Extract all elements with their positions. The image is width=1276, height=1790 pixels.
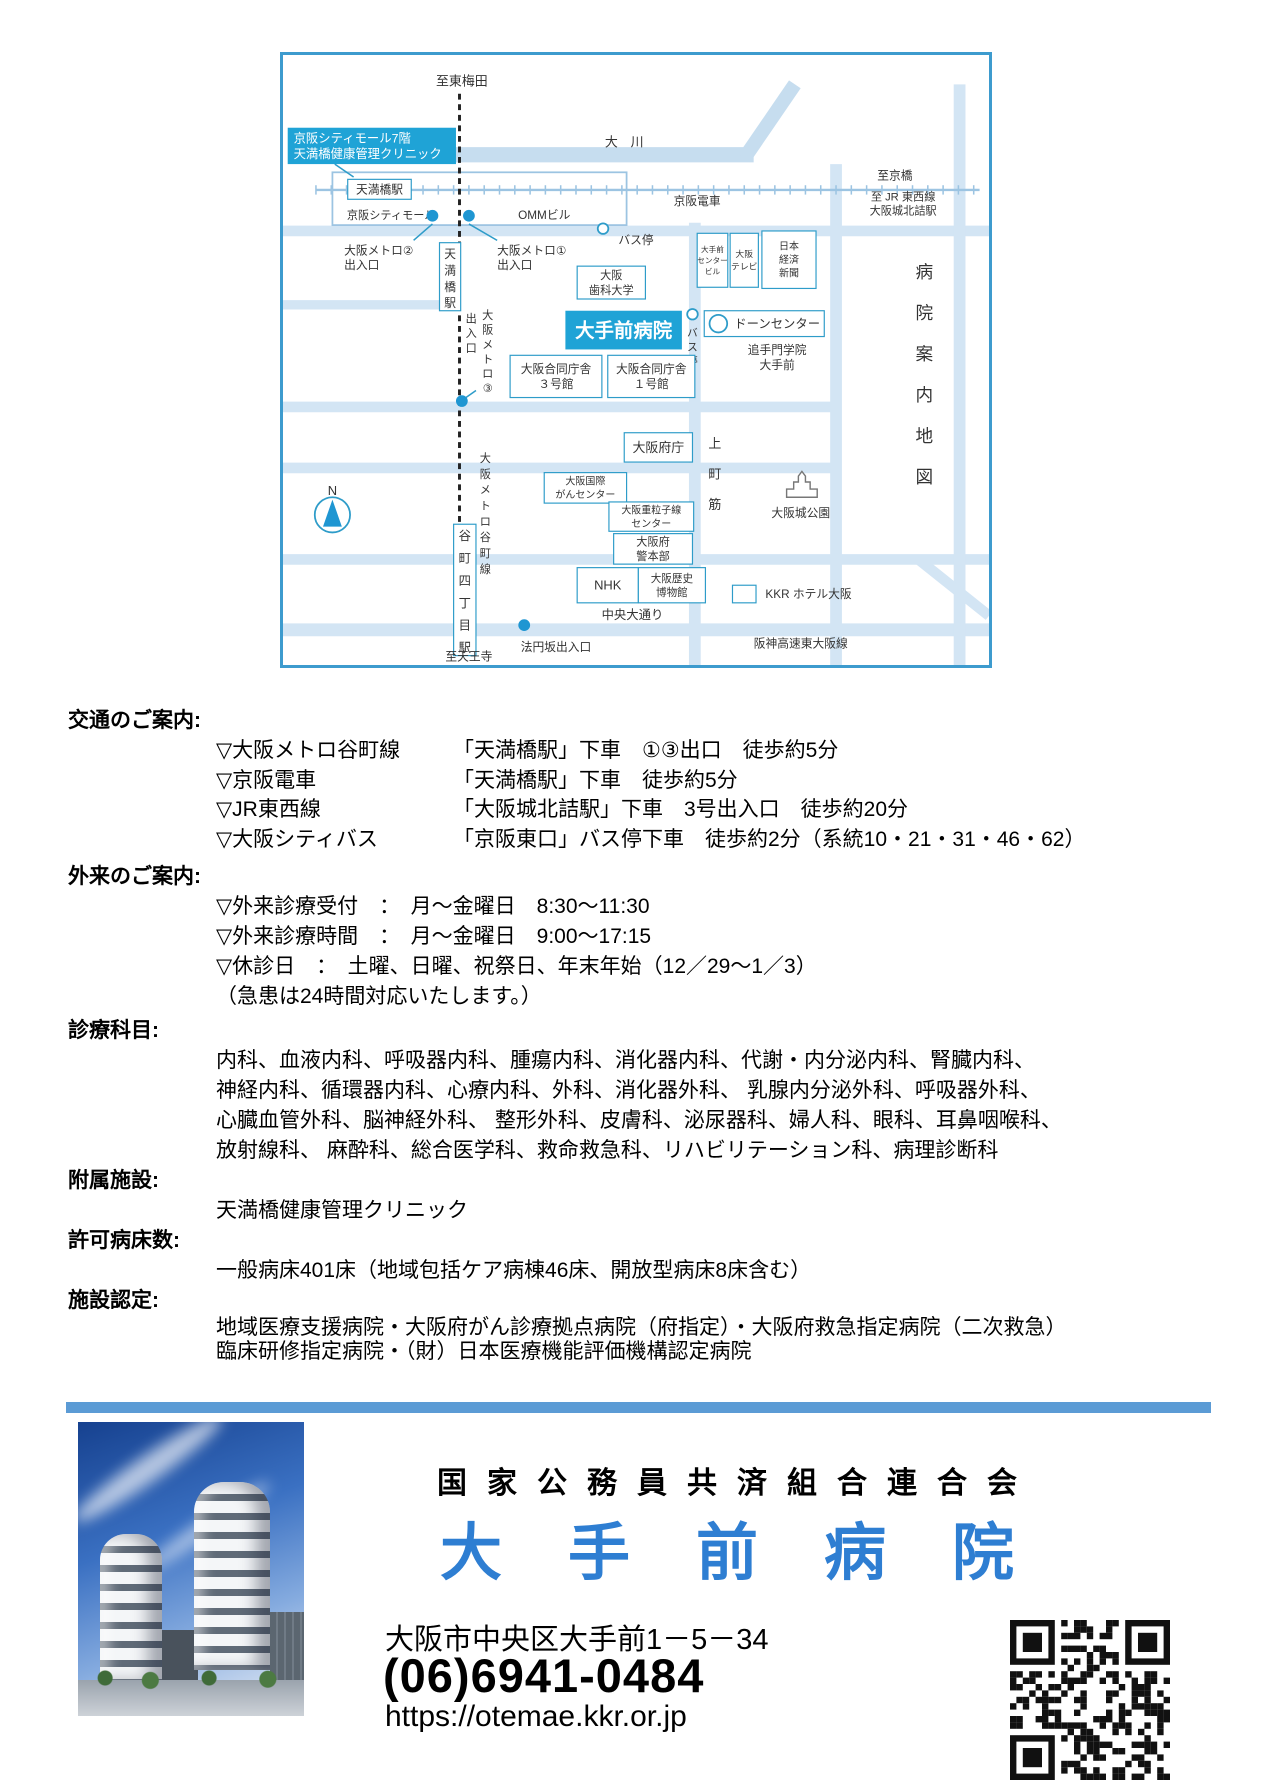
svg-text:出入口: 出入口 bbox=[344, 258, 379, 272]
svg-text:天満橋駅: 天満橋駅 bbox=[356, 182, 403, 196]
svg-text:上: 上 bbox=[708, 436, 721, 451]
svg-text:谷: 谷 bbox=[459, 529, 471, 543]
hospital-phone: (06)6941-0484 bbox=[383, 1648, 704, 1703]
svg-text:博物館: 博物館 bbox=[656, 586, 688, 599]
svg-text:出入口: 出入口 bbox=[497, 258, 532, 272]
beds-value: 一般病床401床（地域包括ケア病棟46床、開放型病床8床含む） bbox=[216, 1256, 1228, 1286]
svg-text:内: 内 bbox=[915, 385, 933, 405]
svg-text:大阪メトロ②: 大阪メトロ② bbox=[344, 243, 413, 257]
access-mode: ▽京阪電車 bbox=[216, 766, 453, 796]
certification-line: 臨床研修指定病院・（財）日本医療機能評価機構認定病院 bbox=[216, 1340, 1228, 1364]
svg-text:筋: 筋 bbox=[708, 497, 721, 512]
svg-text:線: 線 bbox=[480, 562, 491, 576]
access-heading: 交通のご案内: bbox=[68, 706, 1228, 736]
svg-text:メ: メ bbox=[482, 339, 493, 351]
svg-text:大阪合同庁舎: 大阪合同庁舎 bbox=[616, 362, 687, 376]
svg-text:口: 口 bbox=[466, 343, 477, 355]
facility-value: 天満橋健康管理クリニック bbox=[216, 1196, 1228, 1226]
info-sections: 交通のご案内: ▽大阪メトロ谷町線 「天満橋駅」下車 ①③出口 徒歩約5分 ▽京… bbox=[68, 706, 1228, 1364]
svg-text:阪: 阪 bbox=[482, 323, 493, 337]
svg-text:歯科大学: 歯科大学 bbox=[589, 283, 634, 297]
access-item: ▽JR東西線 「大阪城北詰駅」下車 3号出入口 徒歩約20分 bbox=[216, 795, 1228, 825]
svg-text:追手門学院: 追手門学院 bbox=[748, 343, 807, 357]
svg-text:地: 地 bbox=[915, 426, 933, 446]
svg-text:バ: バ bbox=[687, 328, 698, 340]
access-detail: 「大阪城北詰駅」下車 3号出入口 徒歩約20分 bbox=[453, 795, 908, 825]
svg-text:満: 満 bbox=[444, 264, 456, 277]
svg-text:出: 出 bbox=[466, 311, 477, 325]
svg-text:３号館: ３号館 bbox=[538, 377, 573, 391]
svg-text:ロ: ロ bbox=[480, 516, 491, 528]
outpatient-item: ▽休診日 ： 土曜、日曜、祝祭日、年末年始（12／29～1／3） bbox=[216, 952, 1228, 982]
svg-text:N: N bbox=[328, 483, 337, 498]
access-items: ▽大阪メトロ谷町線 「天満橋駅」下車 ①③出口 徒歩約5分 ▽京阪電車 「天満橋… bbox=[68, 736, 1228, 854]
hospital-name: 大手前病院 bbox=[440, 1502, 1080, 1592]
svg-text:大阪府庁: 大阪府庁 bbox=[632, 440, 684, 455]
svg-text:大阪城北詰駅: 大阪城北詰駅 bbox=[870, 204, 937, 218]
svg-text:ビル: ビル bbox=[705, 267, 721, 276]
svg-text:NHK: NHK bbox=[594, 578, 622, 593]
svg-text:大阪府: 大阪府 bbox=[636, 534, 670, 548]
svg-text:阪: 阪 bbox=[480, 467, 491, 481]
svg-text:目: 目 bbox=[459, 619, 471, 633]
svg-text:町: 町 bbox=[459, 551, 471, 565]
svg-text:院: 院 bbox=[915, 303, 933, 323]
access-detail: 「天満橋駅」下車 徒歩約5分 bbox=[453, 766, 738, 796]
svg-text:１号館: １号館 bbox=[634, 377, 669, 391]
qr-code-icon bbox=[1010, 1620, 1170, 1780]
trees-shape bbox=[78, 1666, 304, 1690]
accent-bar bbox=[66, 1402, 1211, 1413]
svg-text:テレビ: テレビ bbox=[731, 262, 758, 272]
svg-text:谷: 谷 bbox=[480, 531, 491, 544]
svg-text:新聞: 新聞 bbox=[779, 267, 799, 280]
svg-text:KKR ホテル大阪: KKR ホテル大阪 bbox=[765, 587, 851, 601]
tower-shape bbox=[194, 1482, 270, 1670]
svg-text:メ: メ bbox=[480, 485, 491, 497]
svg-text:大阪合同庁舎: 大阪合同庁舎 bbox=[521, 362, 592, 376]
svg-text:入: 入 bbox=[466, 328, 477, 340]
svg-text:町: 町 bbox=[480, 548, 491, 560]
svg-text:至東梅田: 至東梅田 bbox=[436, 74, 488, 89]
outpatient-item: ▽外来診療受付 ： 月～金曜日 8:30～11:30 bbox=[216, 892, 1228, 922]
access-map-svg: 至東梅田大 川天満橋駅京阪シティモールOMMビル京阪電車至京橋至 JR 東西線大… bbox=[283, 55, 989, 665]
certification-line: 地域医療支援病院・大阪府がん診療拠点病院（府指定）・大阪府救急指定病院（二次救急… bbox=[216, 1316, 1228, 1340]
svg-text:センター: センター bbox=[631, 518, 671, 530]
tower-shape bbox=[100, 1534, 162, 1682]
svg-text:大: 大 bbox=[482, 308, 493, 322]
svg-text:丁: 丁 bbox=[459, 596, 471, 610]
svg-text:ス: ス bbox=[687, 342, 698, 354]
svg-text:病: 病 bbox=[915, 262, 933, 282]
svg-text:京阪シティモール: 京阪シティモール bbox=[347, 208, 436, 222]
svg-text:大阪メトロ①: 大阪メトロ① bbox=[497, 243, 566, 257]
organization-name: 国家公務員共済組合連合会 bbox=[437, 1458, 1037, 1502]
access-mode: ▽大阪シティバス bbox=[216, 825, 453, 855]
svg-text:天: 天 bbox=[444, 248, 456, 261]
svg-text:バス停: バス停 bbox=[618, 233, 654, 247]
svg-text:阪神高速東大阪線: 阪神高速東大阪線 bbox=[754, 636, 848, 650]
svg-text:ト: ト bbox=[482, 354, 493, 366]
svg-text:中央大通り: 中央大通り bbox=[602, 607, 664, 622]
svg-text:経済: 経済 bbox=[779, 253, 799, 266]
svg-text:京阪電車: 京阪電車 bbox=[674, 194, 721, 208]
outpatient-items: ▽外来診療受付 ： 月～金曜日 8:30～11:30▽外来診療時間 ： 月～金曜… bbox=[68, 892, 1228, 1012]
certification-heading: 施設認定: bbox=[68, 1286, 1228, 1316]
svg-text:OMMビル: OMMビル bbox=[518, 209, 570, 222]
hospital-access-map: 至東梅田大 川天満橋駅京阪シティモールOMMビル京阪電車至京橋至 JR 東西線大… bbox=[280, 52, 992, 668]
facility-heading: 附属施設: bbox=[68, 1166, 1228, 1196]
svg-text:京阪シティモール7階: 京阪シティモール7階 bbox=[294, 130, 411, 145]
svg-text:大阪: 大阪 bbox=[735, 248, 753, 259]
svg-text:大阪: 大阪 bbox=[600, 268, 622, 282]
svg-text:至 JR 東西線: 至 JR 東西線 bbox=[871, 189, 936, 203]
svg-text:ロ: ロ bbox=[482, 369, 493, 381]
access-mode: ▽JR東西線 bbox=[216, 795, 453, 825]
svg-text:日本: 日本 bbox=[779, 240, 799, 253]
outpatient-item: （急患は24時間対応いたします。） bbox=[216, 982, 1228, 1012]
svg-text:大手前: 大手前 bbox=[701, 244, 724, 254]
access-detail: 「天満橋駅」下車 ①③出口 徒歩約5分 bbox=[453, 736, 838, 766]
departments-line: 心臓血管外科、脳神経外科、 整形外科、皮膚科、泌尿器科、婦人科、眼科、耳鼻咽喉科… bbox=[216, 1106, 1228, 1136]
svg-text:大阪歴史: 大阪歴史 bbox=[651, 572, 694, 585]
svg-text:大手前: 大手前 bbox=[760, 358, 796, 372]
svg-text:至天王寺: 至天王寺 bbox=[445, 650, 492, 663]
svg-text:大: 大 bbox=[480, 451, 491, 465]
svg-text:町: 町 bbox=[708, 466, 721, 481]
svg-text:大 川: 大 川 bbox=[605, 135, 644, 150]
svg-text:がんセンター: がんセンター bbox=[555, 488, 615, 501]
departments-lines: 内科、血液内科、呼吸器内科、腫瘍内科、消化器内科、代謝・内分泌内科、腎臓内科、神… bbox=[68, 1046, 1228, 1166]
svg-text:大阪国際: 大阪国際 bbox=[565, 475, 605, 488]
svg-text:ドーンセンター: ドーンセンター bbox=[734, 317, 820, 331]
svg-text:ト: ト bbox=[480, 501, 491, 513]
svg-text:案: 案 bbox=[915, 344, 933, 364]
departments-heading: 診療科目: bbox=[68, 1016, 1228, 1046]
access-detail: 「京阪東口」バス停下車 徒歩約2分（系統10・21・31・46・62） bbox=[453, 825, 1085, 855]
svg-text:大手前病院: 大手前病院 bbox=[575, 319, 673, 342]
hospital-url: https://otemae.kkr.or.jp bbox=[385, 1700, 687, 1734]
access-item: ▽大阪シティバス 「京阪東口」バス停下車 徒歩約2分（系統10・21・31・46… bbox=[216, 825, 1228, 855]
certification-lines: 地域医療支援病院・大阪府がん診療拠点病院（府指定）・大阪府救急指定病院（二次救急… bbox=[68, 1316, 1228, 1364]
access-item: ▽大阪メトロ谷町線 「天満橋駅」下車 ①③出口 徒歩約5分 bbox=[216, 736, 1228, 766]
svg-text:図: 図 bbox=[915, 467, 933, 487]
svg-text:法円坂出入口: 法円坂出入口 bbox=[521, 640, 592, 654]
departments-line: 放射線科、 麻酔科、総合医学科、救命救急科、リハビリテーション科、病理診断科 bbox=[216, 1136, 1228, 1166]
access-mode: ▽大阪メトロ谷町線 bbox=[216, 736, 453, 766]
svg-text:センター: センター bbox=[697, 256, 728, 265]
svg-text:③: ③ bbox=[483, 383, 493, 395]
access-item: ▽京阪電車 「天満橋駅」下車 徒歩約5分 bbox=[216, 766, 1228, 796]
svg-text:四: 四 bbox=[459, 574, 471, 588]
outpatient-heading: 外来のご案内: bbox=[68, 862, 1228, 892]
beds-heading: 許可病床数: bbox=[68, 1226, 1228, 1256]
svg-text:大阪城公園: 大阪城公園 bbox=[771, 506, 830, 520]
svg-text:橋: 橋 bbox=[444, 280, 456, 294]
departments-line: 内科、血液内科、呼吸器内科、腫瘍内科、消化器内科、代謝・内分泌内科、腎臓内科、 bbox=[216, 1046, 1228, 1076]
svg-text:天満橋健康管理クリニック: 天満橋健康管理クリニック bbox=[294, 146, 442, 161]
outpatient-item: ▽外来診療時間 ： 月～金曜日 9:00～17:15 bbox=[216, 922, 1228, 952]
svg-text:警本部: 警本部 bbox=[636, 549, 670, 563]
svg-text:駅: 駅 bbox=[444, 297, 456, 310]
svg-text:至京橋: 至京橋 bbox=[877, 168, 913, 182]
hospital-building-photo bbox=[78, 1422, 304, 1716]
departments-line: 神経内科、循環器内科、心療内科、外科、消化器外科、 乳腺内分泌外科、呼吸器外科、 bbox=[216, 1076, 1228, 1106]
svg-text:大阪重粒子線: 大阪重粒子線 bbox=[621, 503, 681, 516]
